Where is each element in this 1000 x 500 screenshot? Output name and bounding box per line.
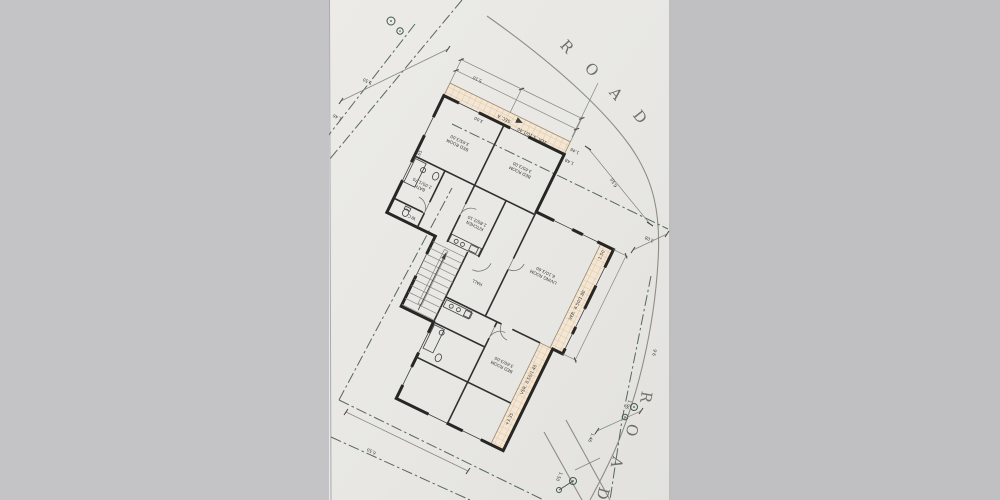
background-left	[0, 0, 329, 500]
background-right	[671, 0, 1000, 500]
photo-of-floor-plan: 5.50 1.46 6.50 3.08 6.50 1.96 1.46 1.50 …	[0, 0, 1000, 500]
drawing-canvas: 5.50 1.46 6.50 3.08 6.50 1.96 1.46 1.50 …	[0, 0, 1000, 500]
